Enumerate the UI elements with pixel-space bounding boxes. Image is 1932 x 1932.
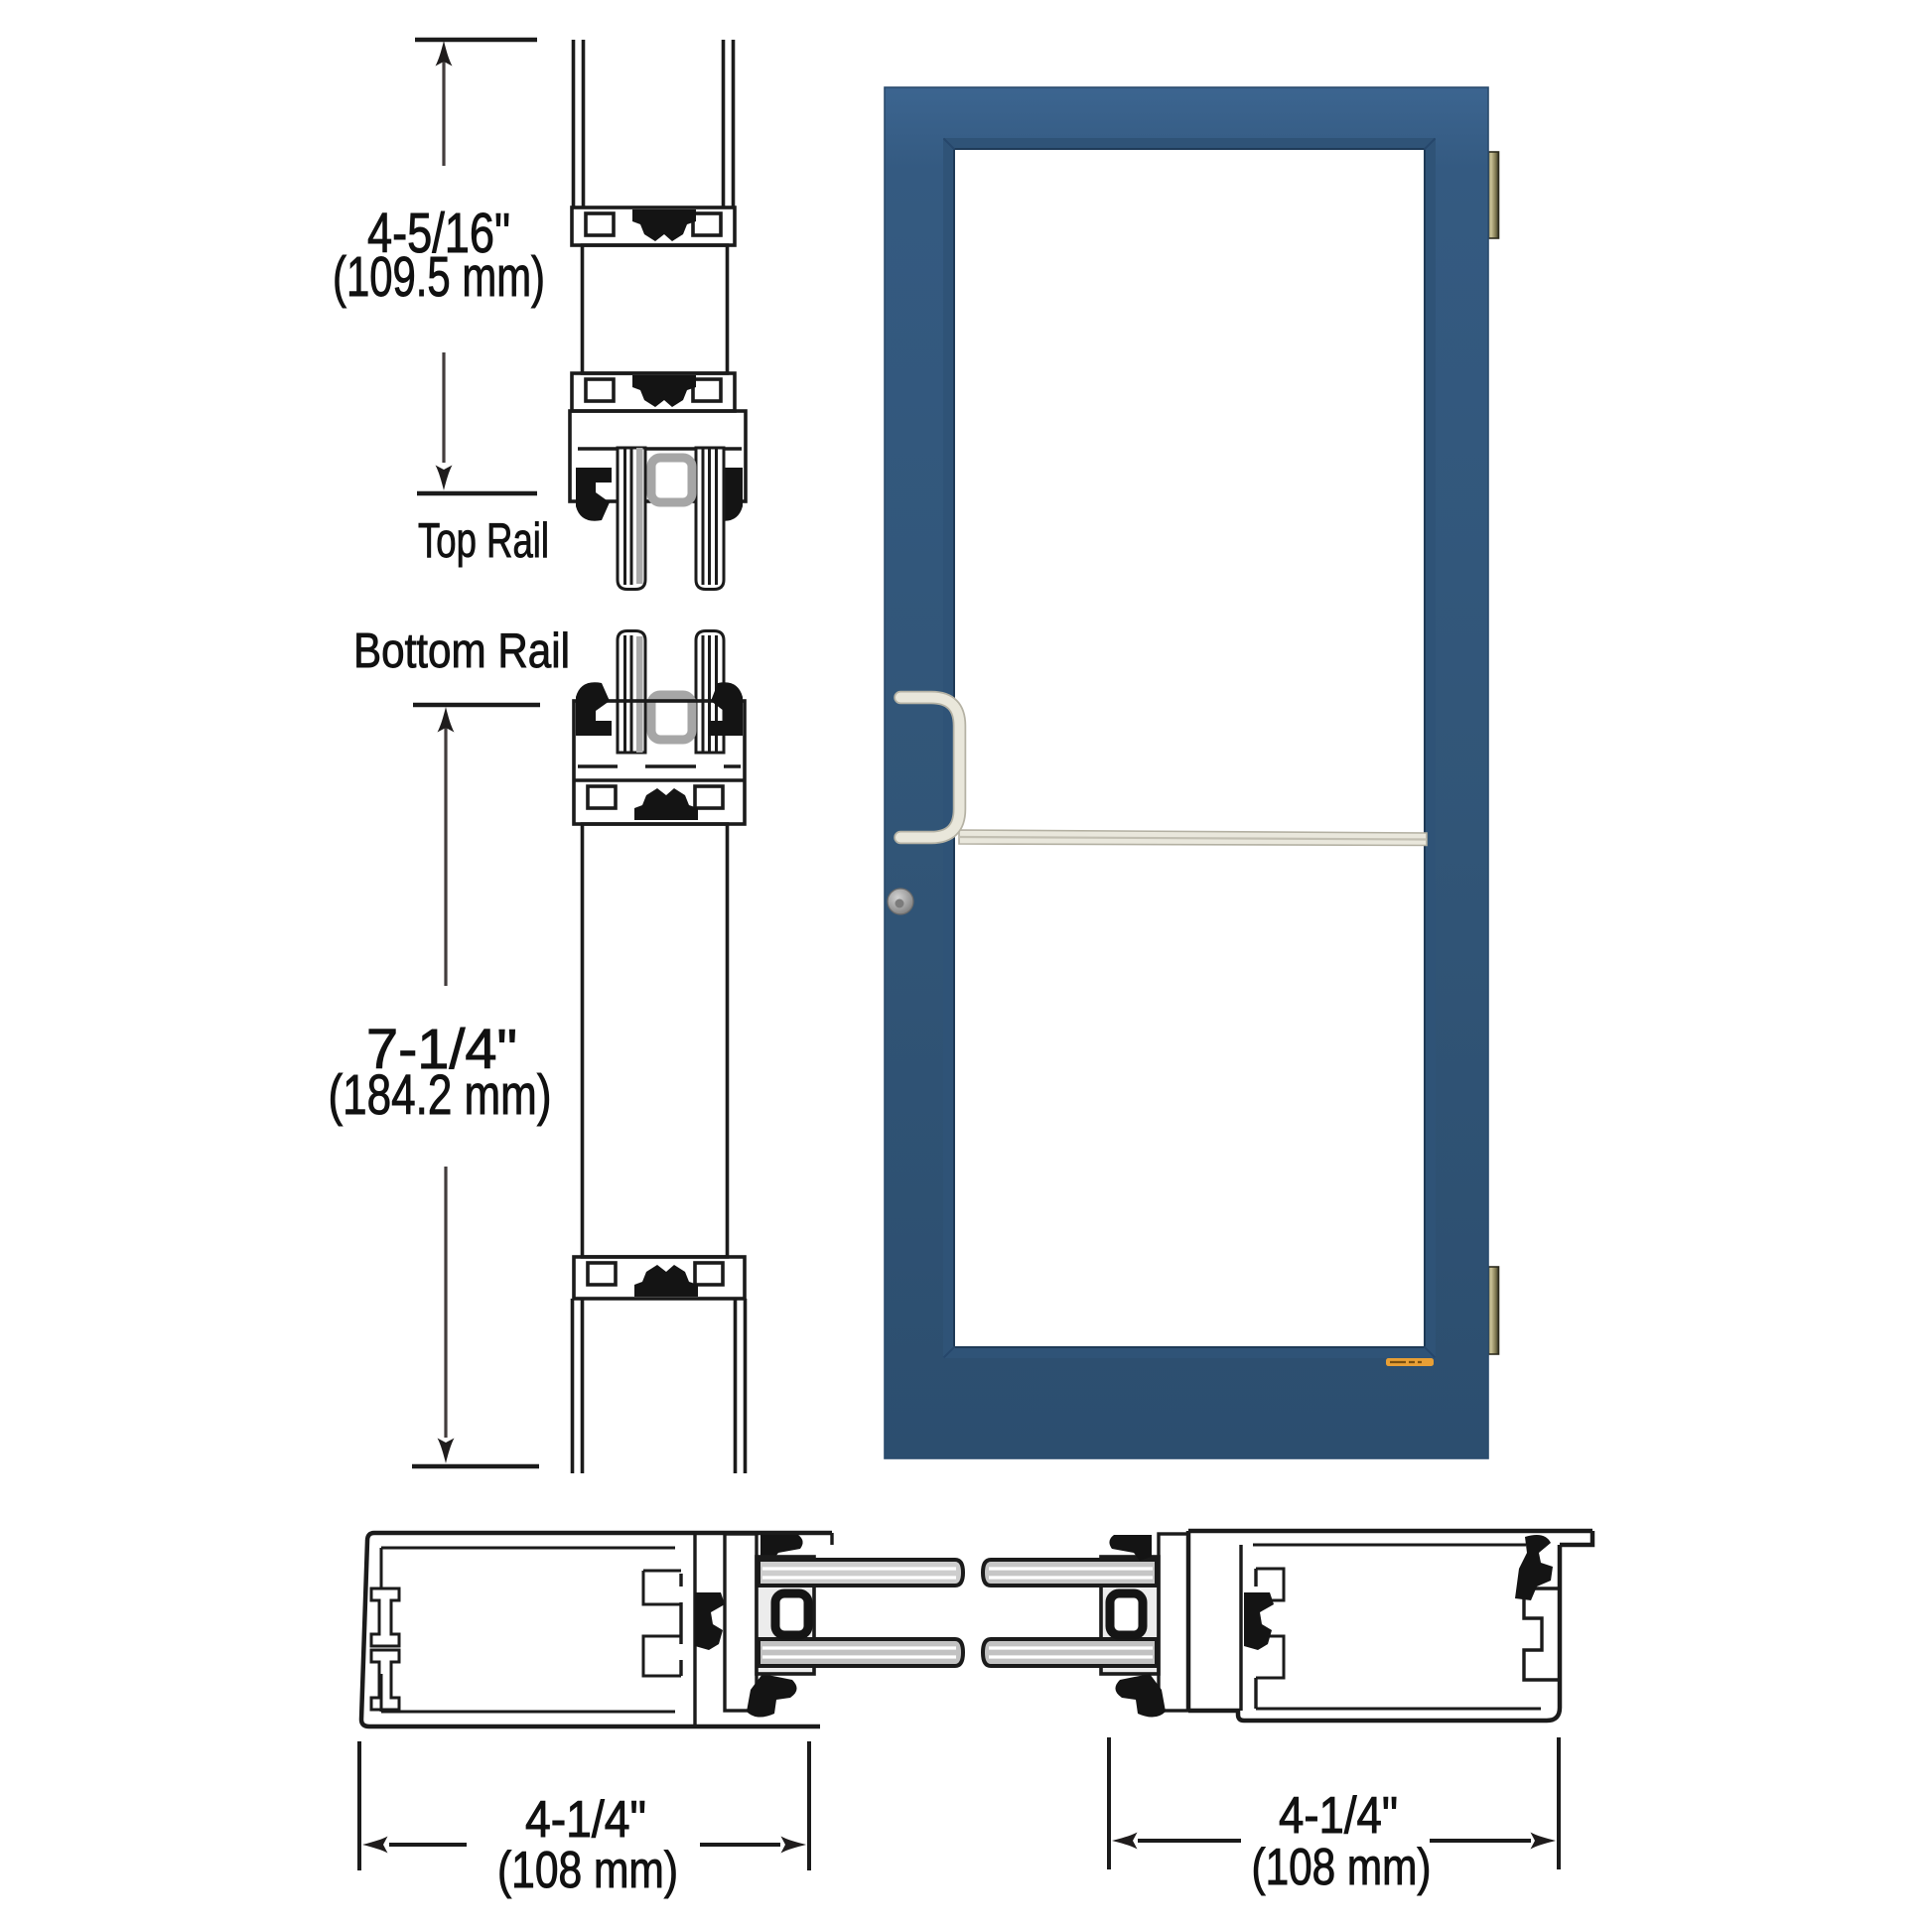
svg-text:(184.2 mm): (184.2 mm)	[329, 1063, 552, 1127]
svg-text:Bottom Rail: Bottom Rail	[353, 624, 570, 678]
svg-text:(108 mm): (108 mm)	[497, 1842, 678, 1899]
svg-text:(109.5 mm): (109.5 mm)	[333, 245, 545, 309]
svg-text:(108 mm): (108 mm)	[1252, 1839, 1432, 1896]
svg-text:4-1/4": 4-1/4"	[525, 1791, 646, 1849]
svg-text:4-1/4": 4-1/4"	[1279, 1787, 1398, 1845]
svg-text:Top Rail: Top Rail	[418, 514, 549, 568]
